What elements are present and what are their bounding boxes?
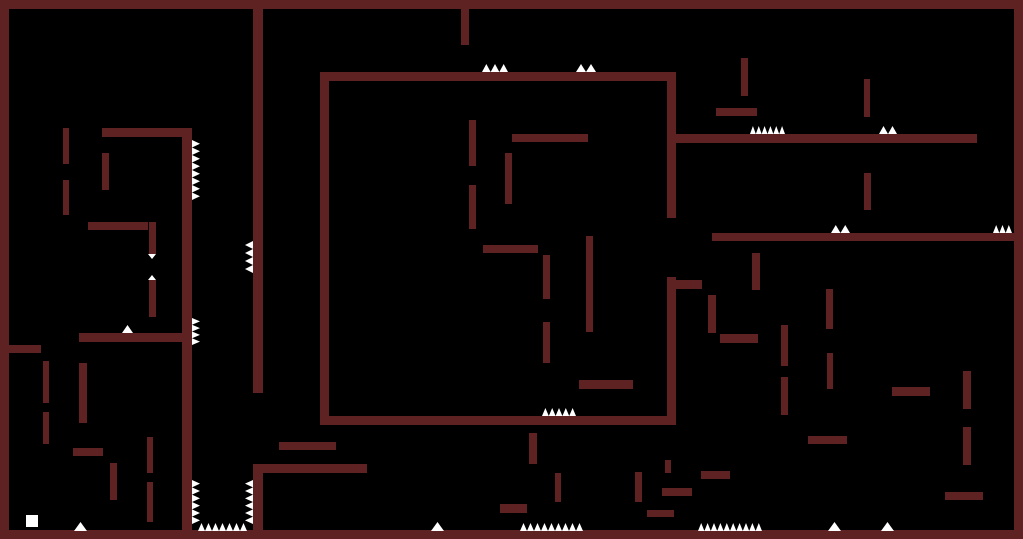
mid-floor-spikes-b-spike-strip <box>993 225 1012 233</box>
wall-lower-post <box>110 463 117 500</box>
wall-box-pin-e <box>543 322 550 363</box>
wall-right-pin-a <box>741 58 748 96</box>
box-top-spikes-b-spike-strip <box>576 64 596 72</box>
wall-right-pin-i <box>963 371 971 409</box>
wall-border-left <box>0 0 9 539</box>
wall-right-ledge-g <box>945 492 983 500</box>
wall-left-pin-upper <box>149 222 156 254</box>
wall-under-box-pin-b <box>555 473 561 502</box>
game-canvas[interactable] <box>0 0 1023 539</box>
wall-border-bottom <box>0 530 1023 539</box>
wall-box-post <box>586 236 593 332</box>
wall-right-pin-j <box>963 427 971 465</box>
wall-right-ledge-c <box>808 436 847 444</box>
wall-box-shelf-b <box>483 245 538 253</box>
wall-right-pin-f <box>781 377 788 415</box>
wall-border-right <box>1014 0 1023 539</box>
wall-right-ledge-a <box>720 334 758 343</box>
wall-right-ledge-b <box>892 387 930 396</box>
wall-left-col-upper <box>63 128 69 164</box>
pin-gap-spike-up-spike-strip <box>148 275 156 280</box>
box-top-spikes-a-spike-strip <box>482 64 508 72</box>
wall-right-ledge-f <box>647 510 674 517</box>
wall-right-pin-k <box>665 460 671 473</box>
wall-mid-branch <box>253 464 367 473</box>
wall-box-pin-c <box>469 185 476 229</box>
upper-floor-spikes-a-spike-strip <box>750 126 785 134</box>
ground-spike-f-spike-strip <box>881 522 894 531</box>
wall-lower-col-a <box>43 361 49 403</box>
wall-right-pin-g <box>826 289 833 329</box>
wall-left-border-stub <box>8 345 41 353</box>
roof-spike-spike-strip <box>122 325 133 333</box>
wall-right-ledge-e <box>662 488 692 496</box>
ground-spike-b-spike-strip <box>431 522 444 531</box>
wall-room-roof <box>79 333 183 342</box>
wall-spikes-right-a-spike-strip <box>192 140 200 200</box>
wall-spikes-left-a-spike-strip <box>245 241 253 273</box>
wall-right-post-a <box>708 295 716 333</box>
wall-under-box-ledge <box>500 504 527 513</box>
pit-floor-spikes-spike-strip <box>198 523 247 531</box>
player-square <box>26 515 38 527</box>
wall-spikes-right-b-spike-strip <box>192 318 200 345</box>
wall-right-pin-d <box>752 253 760 290</box>
wall-box-right-lower <box>667 277 676 425</box>
wall-long-wall-mid-lower <box>253 464 263 539</box>
mid-floor-spikes-a-spike-strip <box>831 225 850 233</box>
upper-floor-spikes-b-spike-strip <box>879 126 897 134</box>
pit-right-wall-spikes-spike-strip <box>245 480 253 524</box>
ground-spikes-d-spike-strip <box>698 523 762 531</box>
wall-right-ledge-d <box>701 471 730 479</box>
wall-box-shelf-c <box>579 380 633 389</box>
wall-right-pin-e <box>781 325 788 366</box>
ground-spike-a-spike-strip <box>74 522 87 531</box>
pit-left-wall-spikes-spike-strip <box>192 480 200 524</box>
wall-left-shelf-top <box>102 128 192 137</box>
wall-right-pin-c <box>864 173 871 210</box>
wall-left-col-mid <box>102 153 109 190</box>
wall-lower-pin-b <box>147 482 153 522</box>
wall-box-left <box>320 72 329 425</box>
wall-room-post <box>79 363 87 423</box>
wall-long-wall-mid-upper <box>253 9 263 393</box>
wall-right-floor-upper <box>676 134 977 143</box>
wall-left-ledge <box>88 222 148 230</box>
wall-box-pin-a <box>469 120 476 166</box>
wall-mid-ledge <box>279 442 336 450</box>
ground-spikes-c-spike-strip <box>520 523 583 531</box>
wall-long-wall-left <box>182 128 192 539</box>
wall-left-col-lower <box>63 180 69 215</box>
wall-border-top <box>0 0 1023 9</box>
wall-lower-pin-a <box>147 437 153 473</box>
wall-box-pin-b <box>505 153 512 204</box>
wall-box-pin-d <box>543 255 550 299</box>
box-bottom-spikes-spike-strip <box>542 408 576 416</box>
pin-gap-spike-down-spike-strip <box>148 254 156 259</box>
wall-box-bottom <box>320 416 676 425</box>
wall-box-top <box>320 72 676 81</box>
wall-box-shelf-a <box>512 134 588 142</box>
wall-lower-ledge <box>73 448 103 456</box>
wall-right-pin-l <box>635 472 642 502</box>
wall-right-floor-lower <box>712 233 1014 241</box>
wall-right-shelf-a <box>716 108 757 116</box>
wall-top-stub <box>461 9 469 45</box>
wall-right-pin-h <box>827 353 833 389</box>
wall-under-box-pin-a <box>529 433 537 464</box>
wall-box-door-lip <box>676 280 702 289</box>
wall-right-pin-b <box>864 79 870 117</box>
wall-box-right-upper <box>667 72 676 218</box>
ground-spike-e-spike-strip <box>828 522 841 531</box>
wall-lower-col-b <box>43 412 49 444</box>
wall-left-pin-lower <box>149 280 156 317</box>
